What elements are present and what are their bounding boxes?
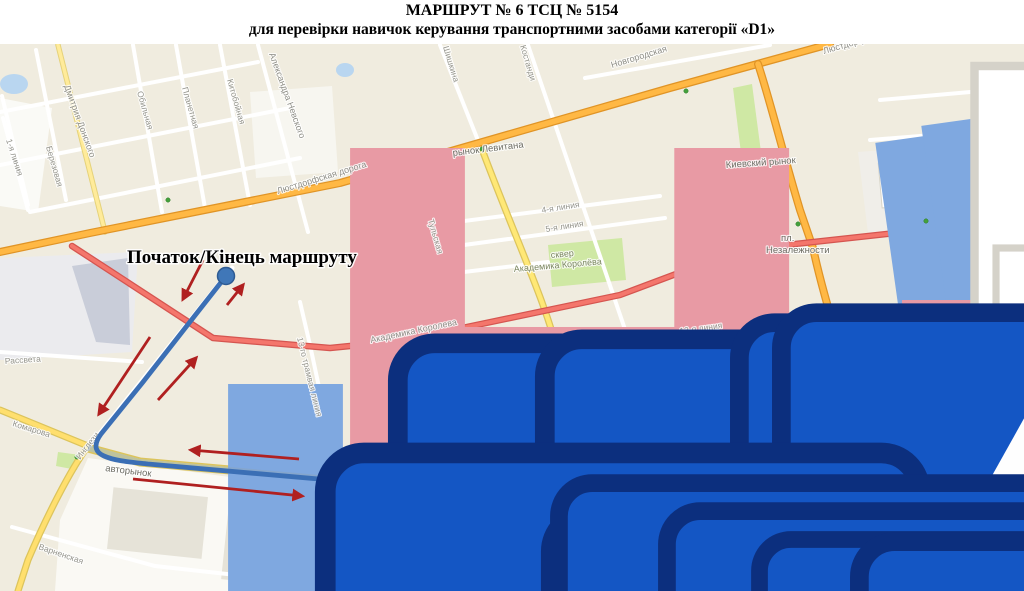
page-title: МАРШРУТ № 6 ТСЦ № 5154 для перевірки нав…	[0, 1, 1024, 39]
route-start-marker	[218, 268, 235, 285]
route-title-line2: для перевірки навичок керування транспор…	[0, 20, 1024, 39]
route-title-line1: МАРШРУТ № 6 ТСЦ № 5154	[0, 1, 1024, 20]
city-map: Дмитрия Донского 1-я линия Березовая Оби…	[0, 0, 1024, 591]
route-start-end-label: Початок/Кінець маршруту	[127, 247, 357, 268]
place-label-pl: пл.	[781, 233, 794, 244]
route-map-page: МАРШРУТ № 6 ТСЦ № 5154 для перевірки нав…	[0, 0, 1024, 591]
place-label-nezalezhnosti: Незалежности	[766, 245, 830, 256]
pedestrian-crossing-sign	[859, 542, 1024, 591]
